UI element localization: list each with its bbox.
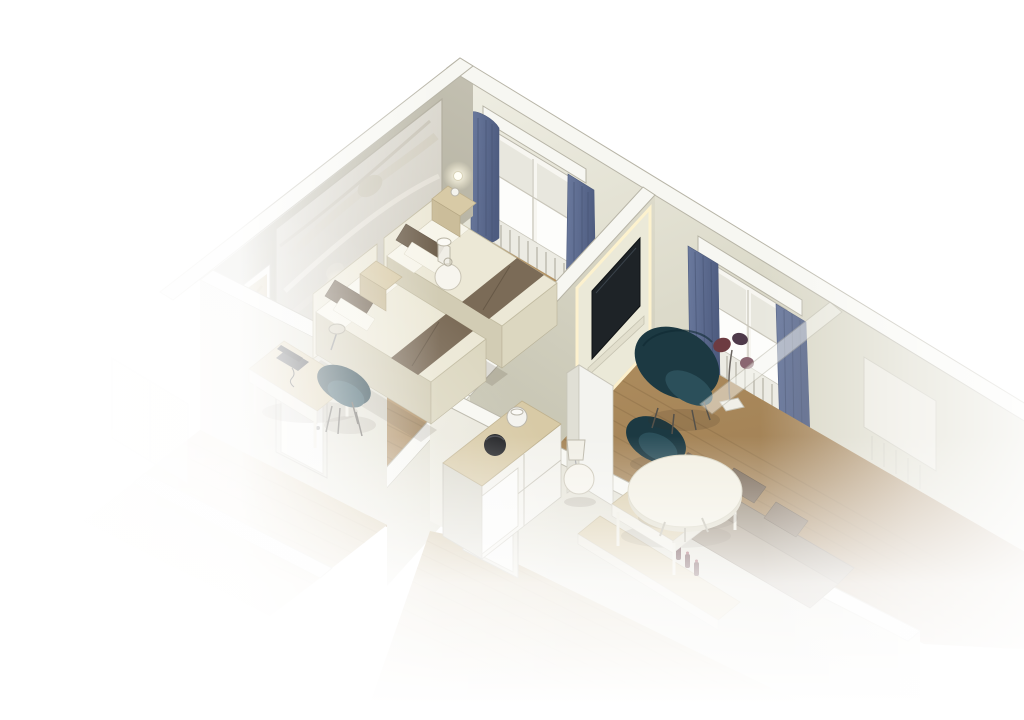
vignette (40, 16, 1024, 704)
fade-corner (40, 16, 1024, 704)
scene-canvas (40, 16, 1024, 704)
suite-cutaway-rendering: Axonometric cutaway rendering of a two-r… (40, 16, 1024, 704)
